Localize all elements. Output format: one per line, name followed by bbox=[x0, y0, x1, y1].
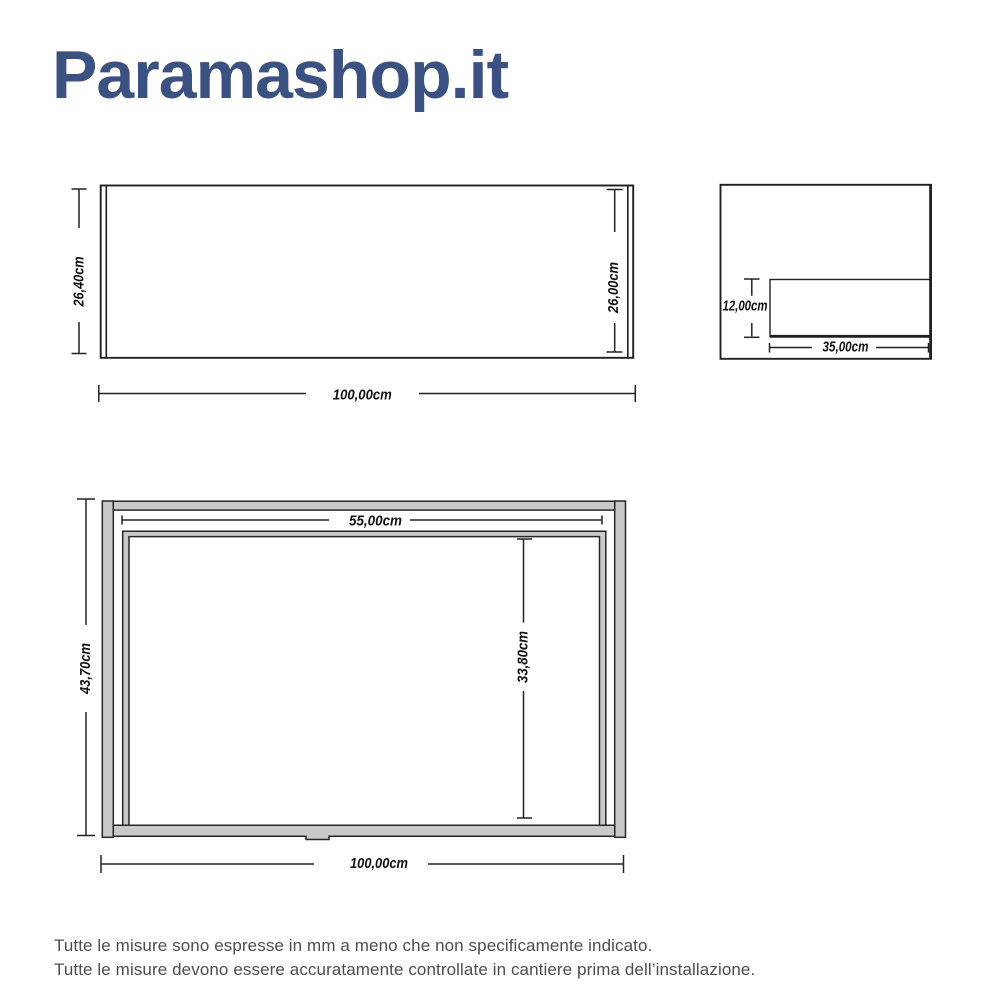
svg-text:35,00cm: 35,00cm bbox=[823, 339, 869, 356]
svg-text:12,00cm: 12,00cm bbox=[723, 298, 768, 315]
svg-text:26,00cm: 26,00cm bbox=[605, 262, 622, 314]
svg-text:55,00cm: 55,00cm bbox=[349, 513, 402, 530]
svg-text:26,40cm: 26,40cm bbox=[71, 257, 88, 308]
svg-text:43,70cm: 43,70cm bbox=[77, 643, 94, 695]
svg-text:100,00cm: 100,00cm bbox=[350, 855, 408, 872]
svg-text:100,00cm: 100,00cm bbox=[333, 386, 392, 403]
svg-text:33,80cm: 33,80cm bbox=[515, 631, 532, 683]
